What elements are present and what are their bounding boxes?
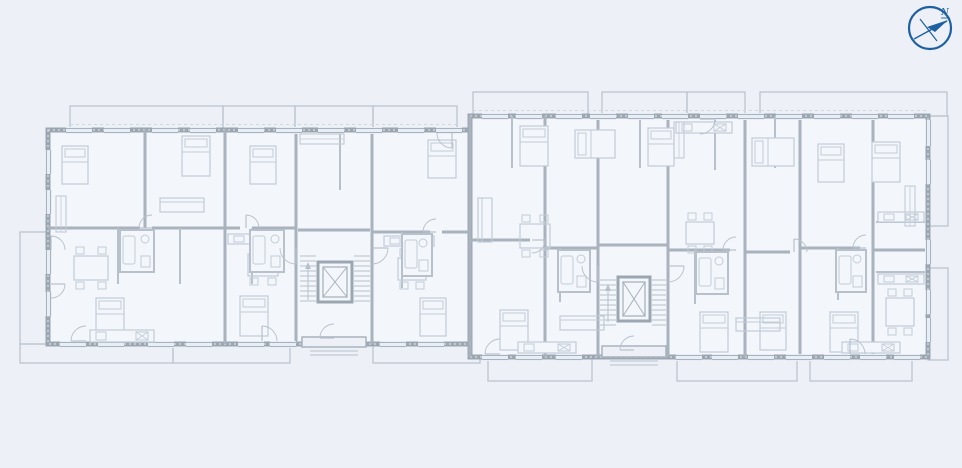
bed	[420, 298, 446, 336]
bed	[752, 138, 794, 166]
balcony-outline	[295, 106, 373, 130]
balcony-outline	[602, 92, 687, 116]
bed	[520, 126, 548, 166]
north-label: N	[940, 8, 950, 18]
bed	[700, 312, 728, 352]
compass-icon: N	[909, 7, 951, 49]
bed	[250, 146, 276, 184]
balcony-outline	[687, 92, 745, 116]
balcony-outline	[373, 106, 457, 130]
balcony-outline	[473, 92, 588, 116]
balcony-outline	[760, 92, 947, 116]
bed	[818, 144, 844, 182]
bed	[240, 296, 268, 336]
balcony-outline	[223, 106, 295, 130]
bed	[575, 130, 615, 158]
bed	[182, 136, 210, 176]
floor-plan: N	[0, 0, 962, 468]
balcony-outline	[20, 232, 48, 344]
bed	[62, 146, 88, 184]
bed	[872, 142, 900, 182]
entrance-recess	[602, 346, 666, 357]
balcony-outline	[70, 106, 223, 130]
bed	[648, 128, 674, 166]
